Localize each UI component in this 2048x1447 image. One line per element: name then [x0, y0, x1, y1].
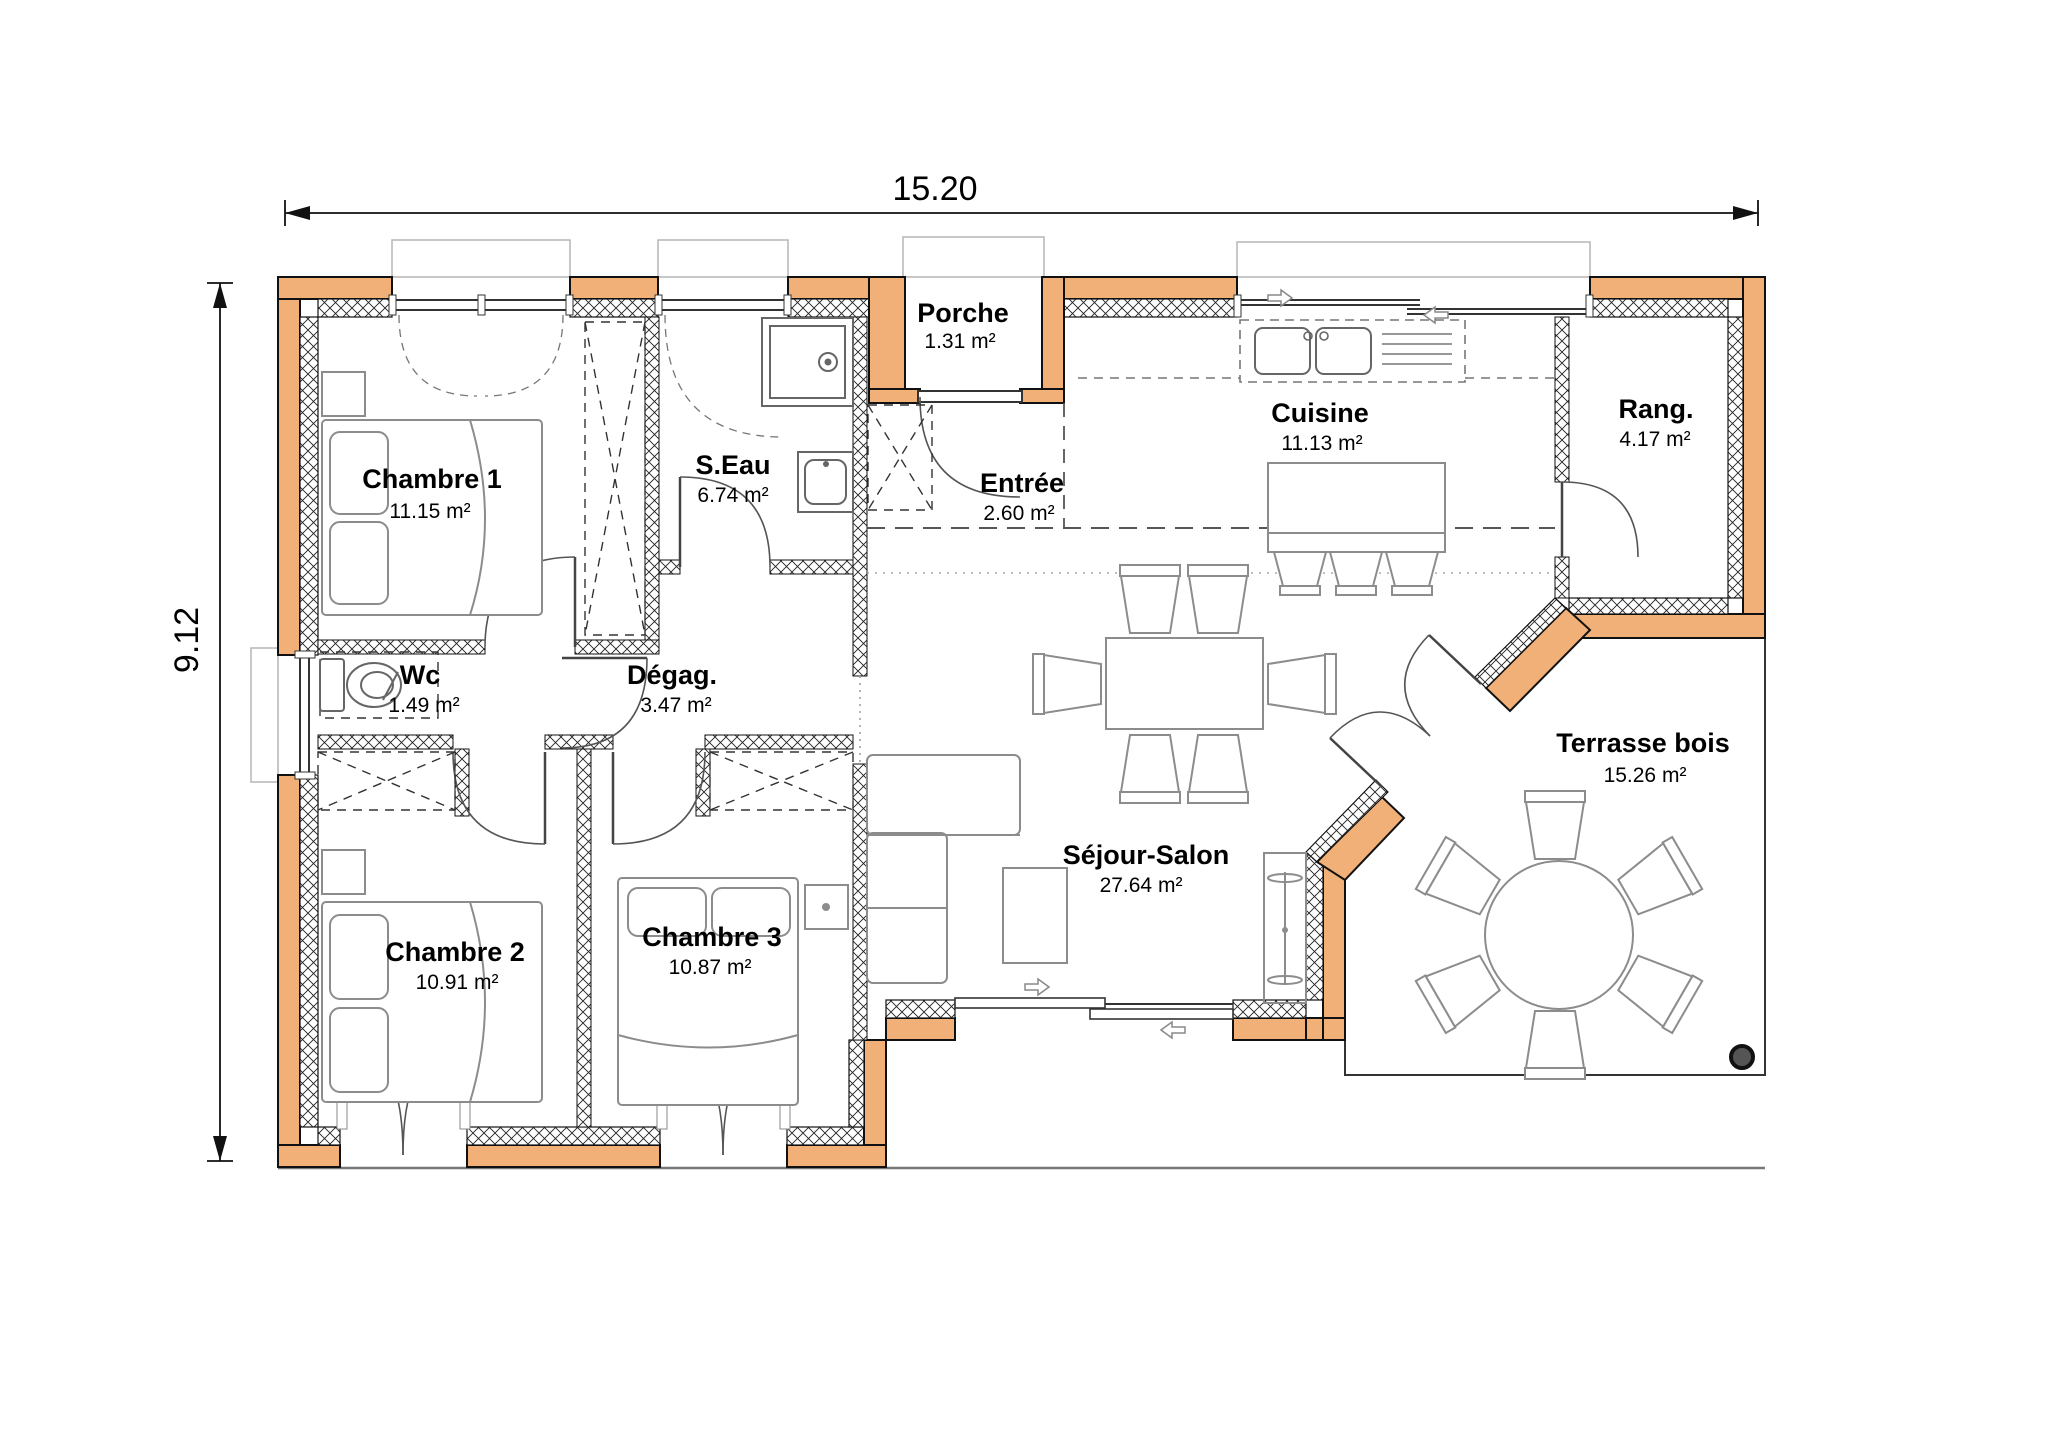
closet-chambre1	[585, 322, 645, 635]
bathroom-sink	[798, 452, 853, 512]
room-name: Chambre 2	[385, 937, 525, 967]
room-area: 10.91 m²	[416, 971, 499, 994]
window-cuisine	[1234, 290, 1593, 323]
chair-icon	[1120, 735, 1180, 803]
dining-table-set	[1033, 565, 1336, 803]
living-furniture	[867, 565, 1336, 1003]
room-area: 15.26 m²	[1604, 764, 1687, 787]
closet-chambre2	[318, 752, 455, 810]
kitchen-sink	[1240, 320, 1465, 382]
room-area: 11.13 m²	[1281, 432, 1362, 455]
terrace-furniture	[1416, 791, 1753, 1079]
door-chambre3	[613, 752, 705, 844]
chair-icon	[1525, 791, 1585, 859]
window-wc	[295, 651, 315, 779]
chair-icon	[1188, 735, 1248, 803]
room-name: Séjour-Salon	[1063, 840, 1230, 870]
door-rangement	[1562, 482, 1638, 557]
room-area: 27.64 m²	[1100, 874, 1183, 897]
chair-icon	[1268, 654, 1336, 714]
room-area: 6.74 m²	[697, 484, 768, 507]
kitchen-furniture	[1078, 320, 1555, 595]
dimension-height: 9.12	[168, 283, 233, 1161]
dimension-width: 15.20	[285, 170, 1758, 226]
floor-plan-page: 15.20 9.12 Chambre 1 11.15 m² S.Eau 6.74…	[0, 0, 2048, 1447]
room-area: 1.31 m²	[924, 330, 995, 353]
room-name: Cuisine	[1271, 398, 1369, 428]
room-area: 11.15 m²	[389, 500, 470, 523]
kitchen-island	[1268, 463, 1445, 595]
chair-icon	[1525, 1011, 1585, 1079]
chair-icon	[1120, 565, 1180, 633]
round-table	[1485, 861, 1633, 1009]
room-name: Chambre 1	[362, 464, 502, 494]
dimension-width-label: 15.20	[892, 170, 977, 208]
room-name: Chambre 3	[642, 922, 782, 952]
coffee-table	[1003, 868, 1067, 963]
room-name: Rang.	[1618, 394, 1693, 424]
room-name: Wc	[400, 660, 441, 690]
closet-chambre3	[710, 752, 853, 810]
room-area: 10.87 m²	[669, 956, 752, 979]
console-lamp	[1264, 853, 1306, 1003]
double-door-terrace	[1330, 635, 1481, 787]
sofa	[867, 755, 1020, 983]
shower	[762, 318, 853, 406]
room-area: 3.47 m²	[640, 694, 711, 717]
room-area: 4.17 m²	[1619, 428, 1690, 451]
room-name: Dégag.	[627, 660, 717, 690]
room-name: Entrée	[980, 468, 1064, 498]
dimension-height-label: 9.12	[168, 607, 206, 673]
slide-arrow-icon	[1161, 1022, 1185, 1038]
chair-icon	[1033, 654, 1101, 714]
stool-icon	[1274, 552, 1326, 595]
room-area: 2.60 m²	[983, 502, 1054, 525]
stool-icon	[1386, 552, 1438, 595]
slide-arrow-icon	[1025, 979, 1049, 995]
room-name: Porche	[917, 298, 1009, 328]
room-name: S.Eau	[695, 450, 770, 480]
room-area: 1.49 m²	[388, 694, 459, 717]
bed-chambre3	[618, 878, 848, 1105]
floor-plan-drawing: 15.20 9.12 Chambre 1 11.15 m² S.Eau 6.74…	[0, 0, 2048, 1447]
closet-entree	[868, 405, 932, 510]
chair-icon	[1188, 565, 1248, 633]
window-chambre1	[389, 295, 573, 396]
survey-point-icon	[1731, 1046, 1753, 1068]
room-name: Terrasse bois	[1556, 728, 1730, 758]
slide-arrow-icon	[1268, 290, 1292, 306]
sliding-bay-door	[955, 979, 1233, 1038]
stool-icon	[1330, 552, 1382, 595]
